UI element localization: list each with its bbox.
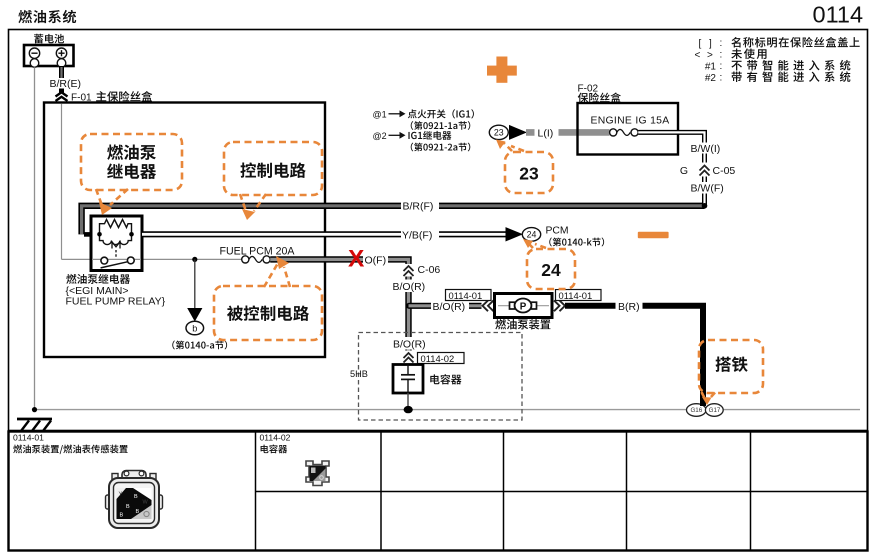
svg-text:0114-01: 0114-01	[559, 290, 593, 301]
svg-text:24: 24	[527, 230, 537, 240]
svg-text::: :	[720, 61, 723, 72]
svg-text::: :	[720, 50, 723, 61]
svg-text:@1: @1	[373, 110, 387, 120]
svg-text:B/R(F): B/R(F)	[403, 201, 434, 213]
svg-text:0114-02: 0114-02	[260, 433, 291, 443]
svg-text:G16: G16	[690, 407, 702, 414]
svg-text:>: >	[707, 50, 713, 61]
svg-text:0114-01: 0114-01	[13, 433, 44, 443]
svg-text:B/O(R): B/O(R)	[393, 338, 426, 350]
svg-text:G: G	[680, 165, 688, 177]
svg-text:B: B	[120, 513, 124, 519]
svg-text:X: X	[348, 246, 365, 273]
svg-text:0114: 0114	[813, 2, 864, 28]
svg-text:B: B	[134, 494, 138, 500]
svg-text:W: W	[143, 500, 149, 506]
svg-text:B/O(R): B/O(R)	[433, 301, 466, 313]
svg-text:@2: @2	[373, 131, 387, 141]
svg-text:23: 23	[519, 164, 539, 184]
svg-text::: :	[720, 73, 723, 84]
svg-text:PCM: PCM	[546, 226, 569, 237]
svg-text:B/W(F): B/W(F)	[691, 183, 724, 195]
svg-text:0114-01: 0114-01	[449, 290, 483, 301]
svg-text:23: 23	[494, 128, 504, 138]
svg-text:C-05: C-05	[713, 165, 736, 177]
svg-text:P: P	[520, 302, 527, 313]
svg-text:[: [	[699, 39, 702, 50]
svg-text:FUEL PCM 20A: FUEL PCM 20A	[220, 246, 296, 258]
svg-text:B/W(I): B/W(I)	[691, 143, 721, 155]
svg-text:G17: G17	[709, 407, 721, 414]
svg-text:<: <	[695, 50, 701, 61]
svg-text:B/O(R): B/O(R)	[393, 281, 426, 293]
svg-text:Y/B(F): Y/B(F)	[402, 229, 432, 241]
svg-text:B: B	[136, 509, 140, 515]
svg-text:O(F): O(F)	[365, 254, 387, 266]
svg-text:#1: #1	[705, 62, 717, 73]
svg-text:B/R(E): B/R(E)	[50, 78, 82, 90]
svg-text:]: ]	[709, 39, 712, 50]
svg-text:C-06: C-06	[418, 264, 441, 276]
svg-text:FUEL PUMP RELAY}: FUEL PUMP RELAY}	[66, 295, 166, 307]
svg-text:Y: Y	[119, 492, 123, 498]
svg-text::: :	[720, 38, 723, 49]
svg-text:L(I): L(I)	[538, 128, 554, 140]
svg-text:B: B	[126, 504, 130, 510]
svg-text:#2: #2	[705, 73, 717, 84]
svg-text:ENGINE IG 15A: ENGINE IG 15A	[591, 115, 670, 126]
svg-text:24: 24	[541, 260, 561, 280]
svg-text:0114-02: 0114-02	[421, 353, 455, 364]
svg-text:b: b	[192, 324, 197, 334]
svg-text:5HB: 5HB	[350, 369, 368, 379]
svg-text:B(R): B(R)	[618, 301, 640, 313]
